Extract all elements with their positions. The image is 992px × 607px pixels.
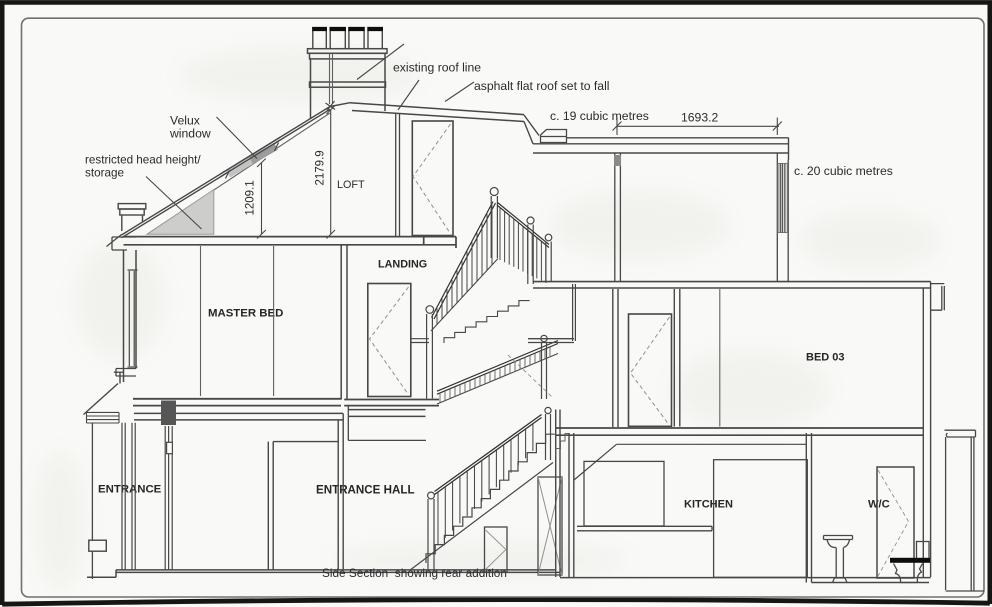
svg-text:1693.2: 1693.2 [681,111,718,125]
svg-text:KITCHEN: KITCHEN [684,499,733,511]
svg-text:window: window [169,127,211,141]
svg-text:LOFT: LOFT [337,179,365,191]
svg-text:storage: storage [85,167,124,180]
svg-text:BED 03: BED 03 [806,352,845,364]
svg-text:Velux: Velux [170,114,200,128]
svg-text:asphalt flat roof set to fall: asphalt flat roof set to fall [474,79,610,93]
svg-text:ENTRANCE: ENTRANCE [98,484,162,496]
svg-text:LANDING: LANDING [378,259,427,271]
svg-text:1209.1: 1209.1 [245,180,257,215]
svg-text:existing roof line: existing roof line [393,61,481,75]
svg-text:MASTER BED: MASTER BED [208,308,283,320]
svg-text:Side Section showing rear add: Side Section showing rear addition [322,566,507,580]
svg-text:restricted head height/: restricted head height/ [85,154,201,167]
svg-text:c. 19 cubic metres: c. 19 cubic metres [550,109,649,123]
svg-text:2179.9: 2179.9 [315,150,327,185]
svg-text:ENTRANCE HALL: ENTRANCE HALL [316,484,415,497]
svg-text:c. 20 cubic metres: c. 20 cubic metres [794,164,893,178]
svg-text:W/C: W/C [868,499,890,511]
